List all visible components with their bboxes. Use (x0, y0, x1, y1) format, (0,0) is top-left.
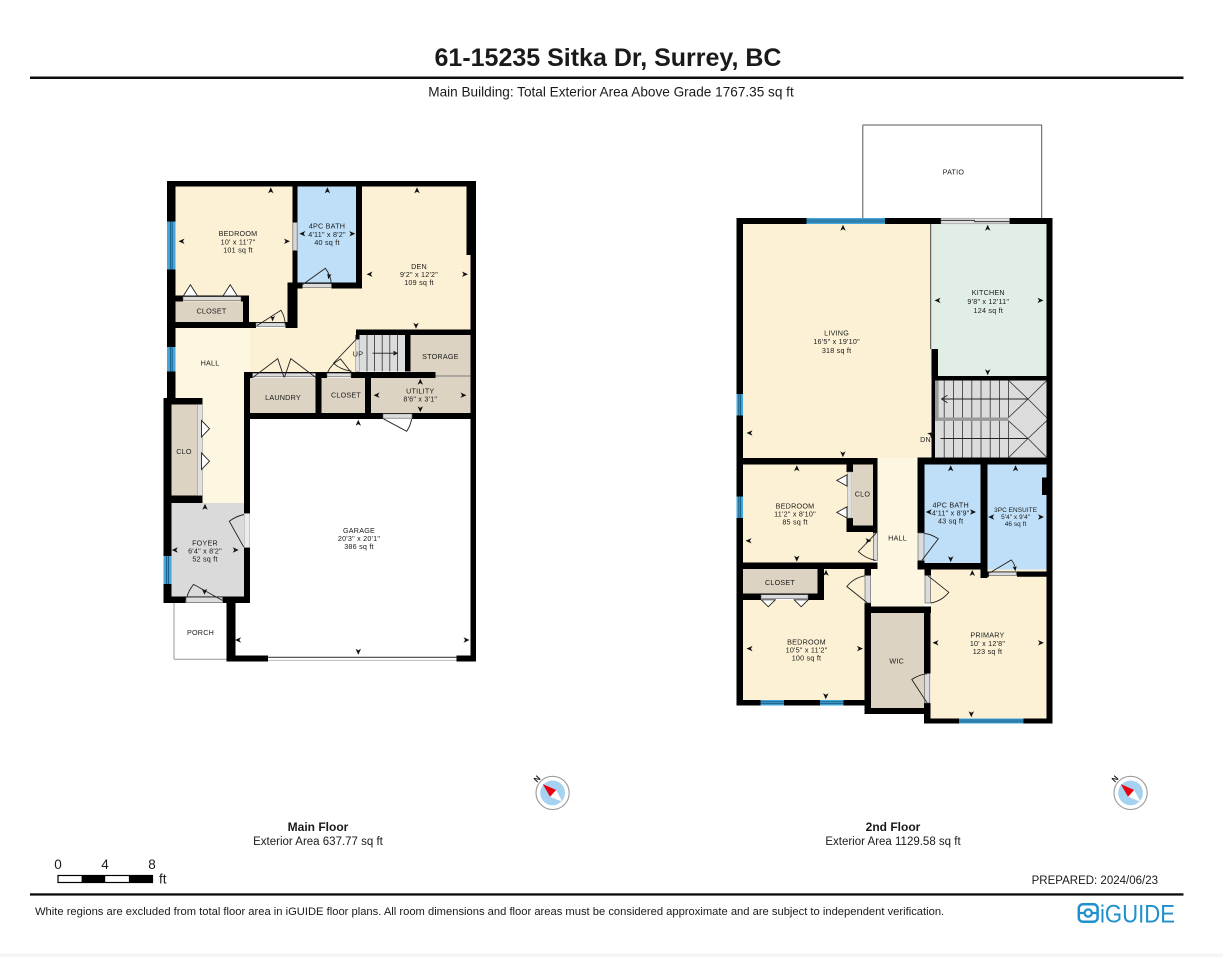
svg-text:CLO: CLO (176, 447, 192, 456)
svg-text:318 sq ft: 318 sq ft (822, 346, 852, 355)
svg-text:UP: UP (353, 349, 363, 358)
svg-text:52 sq ft: 52 sq ft (192, 555, 217, 564)
svg-text:386 sq ft: 386 sq ft (344, 542, 374, 551)
svg-text:STORAGE: STORAGE (422, 352, 459, 361)
svg-text:2nd Floor: 2nd Floor (866, 820, 921, 834)
svg-text:Main Floor: Main Floor (288, 820, 349, 834)
svg-text:HALL: HALL (888, 534, 907, 543)
svg-text:100 sq ft: 100 sq ft (792, 653, 822, 662)
svg-text:109 sq ft: 109 sq ft (404, 278, 434, 287)
svg-text:9'8" x 12'11": 9'8" x 12'11" (967, 297, 1009, 306)
svg-text:101 sq ft: 101 sq ft (223, 246, 253, 255)
svg-text:LAUNDRY: LAUNDRY (265, 393, 301, 402)
svg-text:0: 0 (54, 857, 62, 872)
svg-text:iGUIDE: iGUIDE (1100, 901, 1175, 929)
svg-text:WIC: WIC (889, 657, 904, 666)
svg-text:8'6" x 3'1": 8'6" x 3'1" (403, 395, 437, 404)
svg-text:4: 4 (101, 857, 109, 872)
svg-text:8: 8 (148, 857, 156, 872)
svg-text:DN: DN (920, 435, 931, 444)
svg-text:Exterior Area 1129.58 sq ft: Exterior Area 1129.58 sq ft (825, 836, 961, 848)
svg-text:CLOSET: CLOSET (331, 391, 361, 400)
svg-text:CLOSET: CLOSET (196, 307, 226, 316)
svg-text:61-15235 Sitka Dr, Surrey, BC: 61-15235 Sitka Dr, Surrey, BC (435, 44, 782, 72)
svg-text:Main Building: Total Exterior: Main Building: Total Exterior Area Above… (428, 85, 794, 100)
svg-text:PREPARED: 2024/06/23: PREPARED: 2024/06/23 (1032, 875, 1158, 887)
svg-text:43 sq ft: 43 sq ft (938, 516, 963, 525)
svg-text:KITCHEN: KITCHEN (972, 288, 1005, 297)
svg-text:PORCH: PORCH (187, 628, 214, 637)
svg-text:124 sq ft: 124 sq ft (974, 306, 1004, 315)
svg-text:Exterior Area 637.77 sq ft: Exterior Area 637.77 sq ft (253, 836, 384, 848)
svg-text:CLO: CLO (855, 489, 871, 498)
svg-text:40 sq ft: 40 sq ft (314, 238, 339, 247)
svg-text:123 sq ft: 123 sq ft (973, 647, 1003, 656)
svg-text:46 sq ft: 46 sq ft (1005, 521, 1027, 528)
svg-text:HALL: HALL (201, 358, 220, 367)
svg-text:16'5" x 19'10": 16'5" x 19'10" (813, 337, 860, 346)
svg-text:PATIO: PATIO (943, 168, 965, 177)
svg-text:85 sq ft: 85 sq ft (782, 518, 807, 527)
svg-text:White regions are excluded fro: White regions are excluded from total fl… (35, 906, 944, 918)
svg-text:CLOSET: CLOSET (765, 578, 795, 587)
svg-text:LIVING: LIVING (824, 328, 849, 337)
svg-text:5'4" x 9'4": 5'4" x 9'4" (1001, 514, 1030, 521)
svg-text:ft: ft (159, 872, 167, 887)
svg-text:3PC ENSUITE: 3PC ENSUITE (994, 507, 1037, 514)
